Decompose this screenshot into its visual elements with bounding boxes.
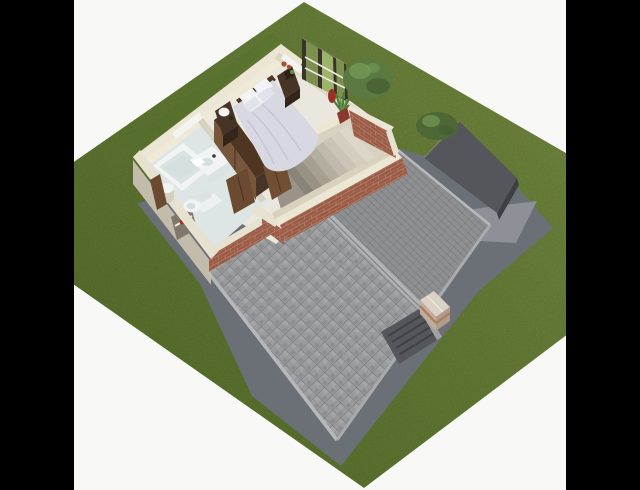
dresser-flowers-icon xyxy=(287,65,291,69)
floorplan-3d-render xyxy=(0,0,640,490)
garden-tree xyxy=(343,59,393,99)
garage-bush xyxy=(416,112,458,140)
dresser-leaves-icon xyxy=(290,70,294,74)
nightstand-item xyxy=(229,116,233,120)
left-pillarbox-bar xyxy=(0,0,74,490)
faucet-icon xyxy=(212,154,216,158)
render-canvas xyxy=(0,0,640,490)
table-lamp xyxy=(219,108,230,117)
right-pillarbox-bar xyxy=(566,0,640,490)
dresser-flowers-icon xyxy=(281,61,286,66)
